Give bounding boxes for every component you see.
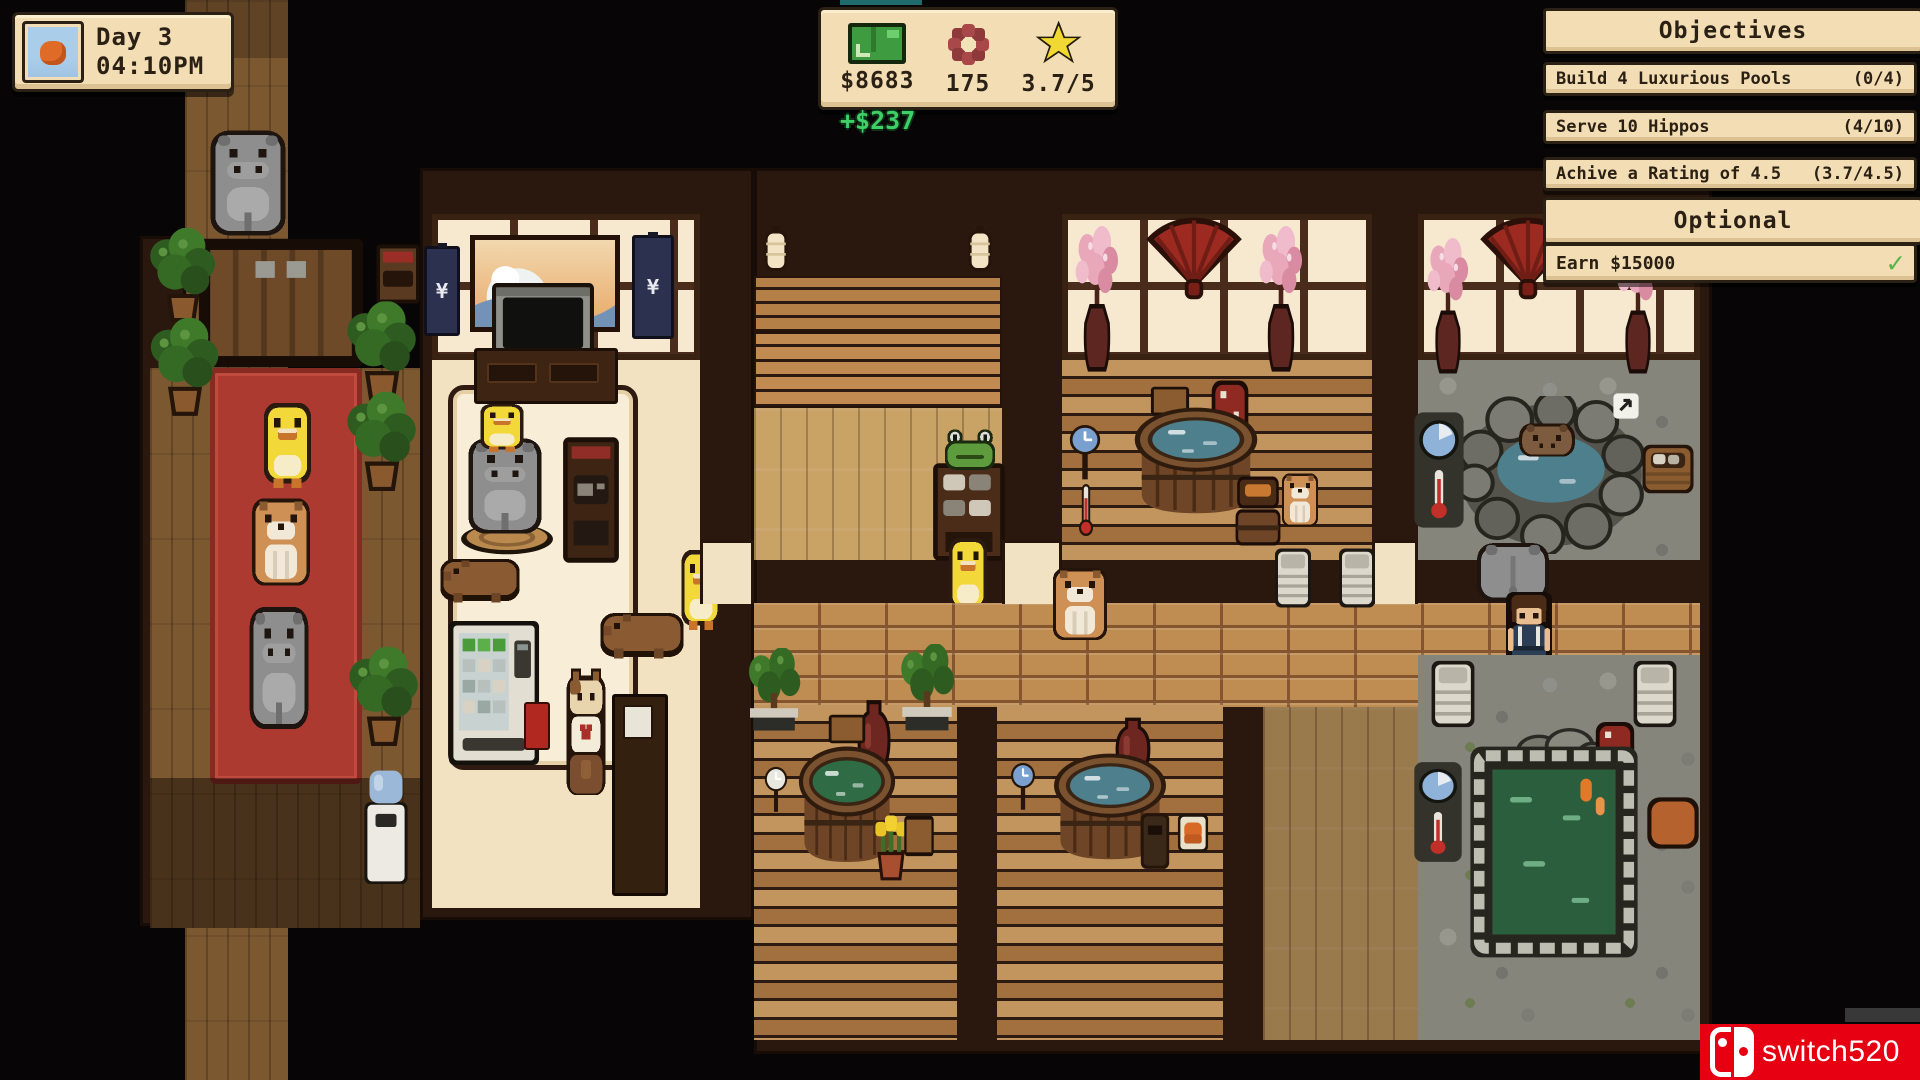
watermark-bar — [1845, 1008, 1920, 1022]
objective-label: Build 4 Luxurious Pools — [1556, 69, 1791, 89]
sun-icon — [40, 41, 66, 65]
money-resource: $8683 — [840, 23, 914, 94]
queue-shiba-dog[interactable] — [249, 496, 313, 588]
upgrade-icon[interactable] — [1612, 392, 1640, 420]
towel-basket[interactable] — [1640, 442, 1696, 496]
money-value: $8683 — [840, 68, 914, 94]
potted-plant[interactable] — [146, 318, 224, 418]
hippo-bathing[interactable] — [1516, 420, 1578, 460]
water-heater[interactable] — [1138, 810, 1172, 872]
shiba-walking-corridor[interactable] — [1050, 566, 1110, 642]
progress-sliver — [840, 0, 922, 5]
yen-banner-left[interactable]: ¥ — [424, 246, 460, 336]
objective-progress: (4/10) — [1843, 117, 1904, 137]
water-cooler[interactable] — [362, 768, 410, 886]
paper-lantern[interactable] — [966, 226, 994, 274]
cherry-blossom-vase[interactable] — [1426, 238, 1470, 398]
watermark-text: switch520 — [1762, 1035, 1900, 1069]
star-icon — [1035, 21, 1083, 67]
watermark-banner: switch520 — [1700, 1024, 1920, 1080]
objectives-title: Objectives — [1543, 8, 1920, 54]
frog-shopkeeper[interactable] — [942, 428, 998, 472]
wall-pillar — [1372, 540, 1418, 604]
red-fan-decoration[interactable] — [1134, 208, 1254, 304]
rating-resource: 3.7/5 — [1022, 21, 1096, 97]
cherry-blossom-vase[interactable] — [1258, 226, 1304, 398]
bonsai-tree[interactable] — [742, 648, 806, 734]
yen-banner-right[interactable]: ¥ — [632, 235, 674, 339]
time-label: 04:10PM — [96, 52, 204, 81]
thermometer[interactable] — [1078, 484, 1094, 536]
wall-clock-blue[interactable] — [1008, 762, 1038, 812]
money-delta: +$237 — [820, 106, 1122, 135]
bonsai-tree[interactable] — [894, 644, 960, 734]
capybara-guest[interactable] — [438, 556, 522, 604]
cherry-blossom-vase[interactable] — [1074, 226, 1120, 398]
day-time-panel: Day 3 04:10PM — [12, 12, 234, 92]
lounge-chair[interactable] — [1336, 546, 1378, 610]
sauna-bench-upper[interactable] — [754, 276, 1002, 332]
objective-label: Serve 10 Hippos — [1556, 117, 1710, 137]
objective-label: Earn $15000 — [1556, 253, 1675, 274]
lounge-chair[interactable] — [1428, 658, 1478, 730]
wooden-crate[interactable] — [902, 812, 936, 860]
flower-icon — [945, 21, 991, 67]
sauna-bench-lower[interactable] — [754, 332, 1002, 408]
money-icon — [848, 23, 906, 64]
objective-progress: (0/4) — [1853, 69, 1904, 89]
cabinet-drawer — [487, 363, 537, 383]
queue-duck[interactable] — [260, 403, 315, 488]
storage-locker[interactable] — [560, 434, 622, 566]
objective-label: Achive a Rating of 4.5 — [1556, 164, 1781, 184]
check-icon: ✓ — [1887, 249, 1904, 277]
game-screen: ¥ ¥ — [0, 0, 1920, 1080]
terracotta-cushion[interactable] — [1644, 794, 1702, 852]
info-board-clock-thermo[interactable] — [1412, 410, 1466, 530]
koi-pool-green[interactable] — [1466, 742, 1642, 962]
rating-value: 3.7/5 — [1022, 71, 1096, 97]
wall-clock-white[interactable] — [762, 766, 790, 814]
duck-on-hippo-head[interactable] — [477, 404, 527, 452]
objective-serve-hippos: Serve 10 Hippos (4/10) — [1543, 110, 1917, 144]
nintendo-switch-icon — [1710, 1027, 1754, 1077]
cabinet-drawer — [549, 363, 599, 383]
potted-plant[interactable] — [344, 390, 420, 495]
hippo-arriving[interactable] — [206, 128, 290, 238]
wall-clock-blue[interactable] — [1066, 424, 1104, 482]
lounge-chair[interactable] — [1272, 546, 1314, 610]
wall-pillar — [700, 540, 754, 604]
potted-plant[interactable] — [146, 228, 220, 324]
side-passage-shade — [1263, 707, 1418, 1040]
flower-value: 175 — [946, 71, 991, 97]
queue-hippo[interactable] — [246, 604, 312, 732]
paper-lantern[interactable] — [762, 226, 790, 274]
frog-sign-box[interactable] — [1176, 812, 1210, 854]
tv-cabinet[interactable] — [474, 348, 618, 404]
banner-glyph: ¥ — [436, 279, 448, 303]
optional-earn-money: Earn $15000 ✓ — [1543, 243, 1917, 283]
reception-desk[interactable] — [612, 694, 668, 896]
resources-panel: $8683 175 3.7/5 — [818, 7, 1118, 110]
receptionist-cat[interactable] — [560, 666, 612, 800]
reception-sign — [623, 705, 653, 739]
flower-resource: 175 — [945, 21, 991, 97]
sunset-icon — [22, 21, 84, 83]
bucket-stack[interactable] — [1232, 474, 1284, 548]
banner-glyph: ¥ — [647, 275, 659, 299]
objective-achieve-rating: Achive a Rating of 4.5 (3.7/4.5) — [1543, 157, 1917, 191]
day-label: Day 3 — [96, 23, 204, 52]
capybara-guest[interactable] — [598, 610, 686, 660]
info-board-clock-thermo[interactable] — [1412, 760, 1464, 864]
objective-progress: (3.7/4.5) — [1812, 164, 1904, 184]
shiba-guest-sitting[interactable] — [1280, 472, 1320, 528]
objective-build-pools: Build 4 Luxurious Pools (0/4) — [1543, 62, 1917, 96]
potted-plant[interactable] — [346, 645, 422, 750]
fire-extinguisher[interactable] — [524, 702, 550, 750]
optional-title: Optional — [1543, 197, 1920, 245]
